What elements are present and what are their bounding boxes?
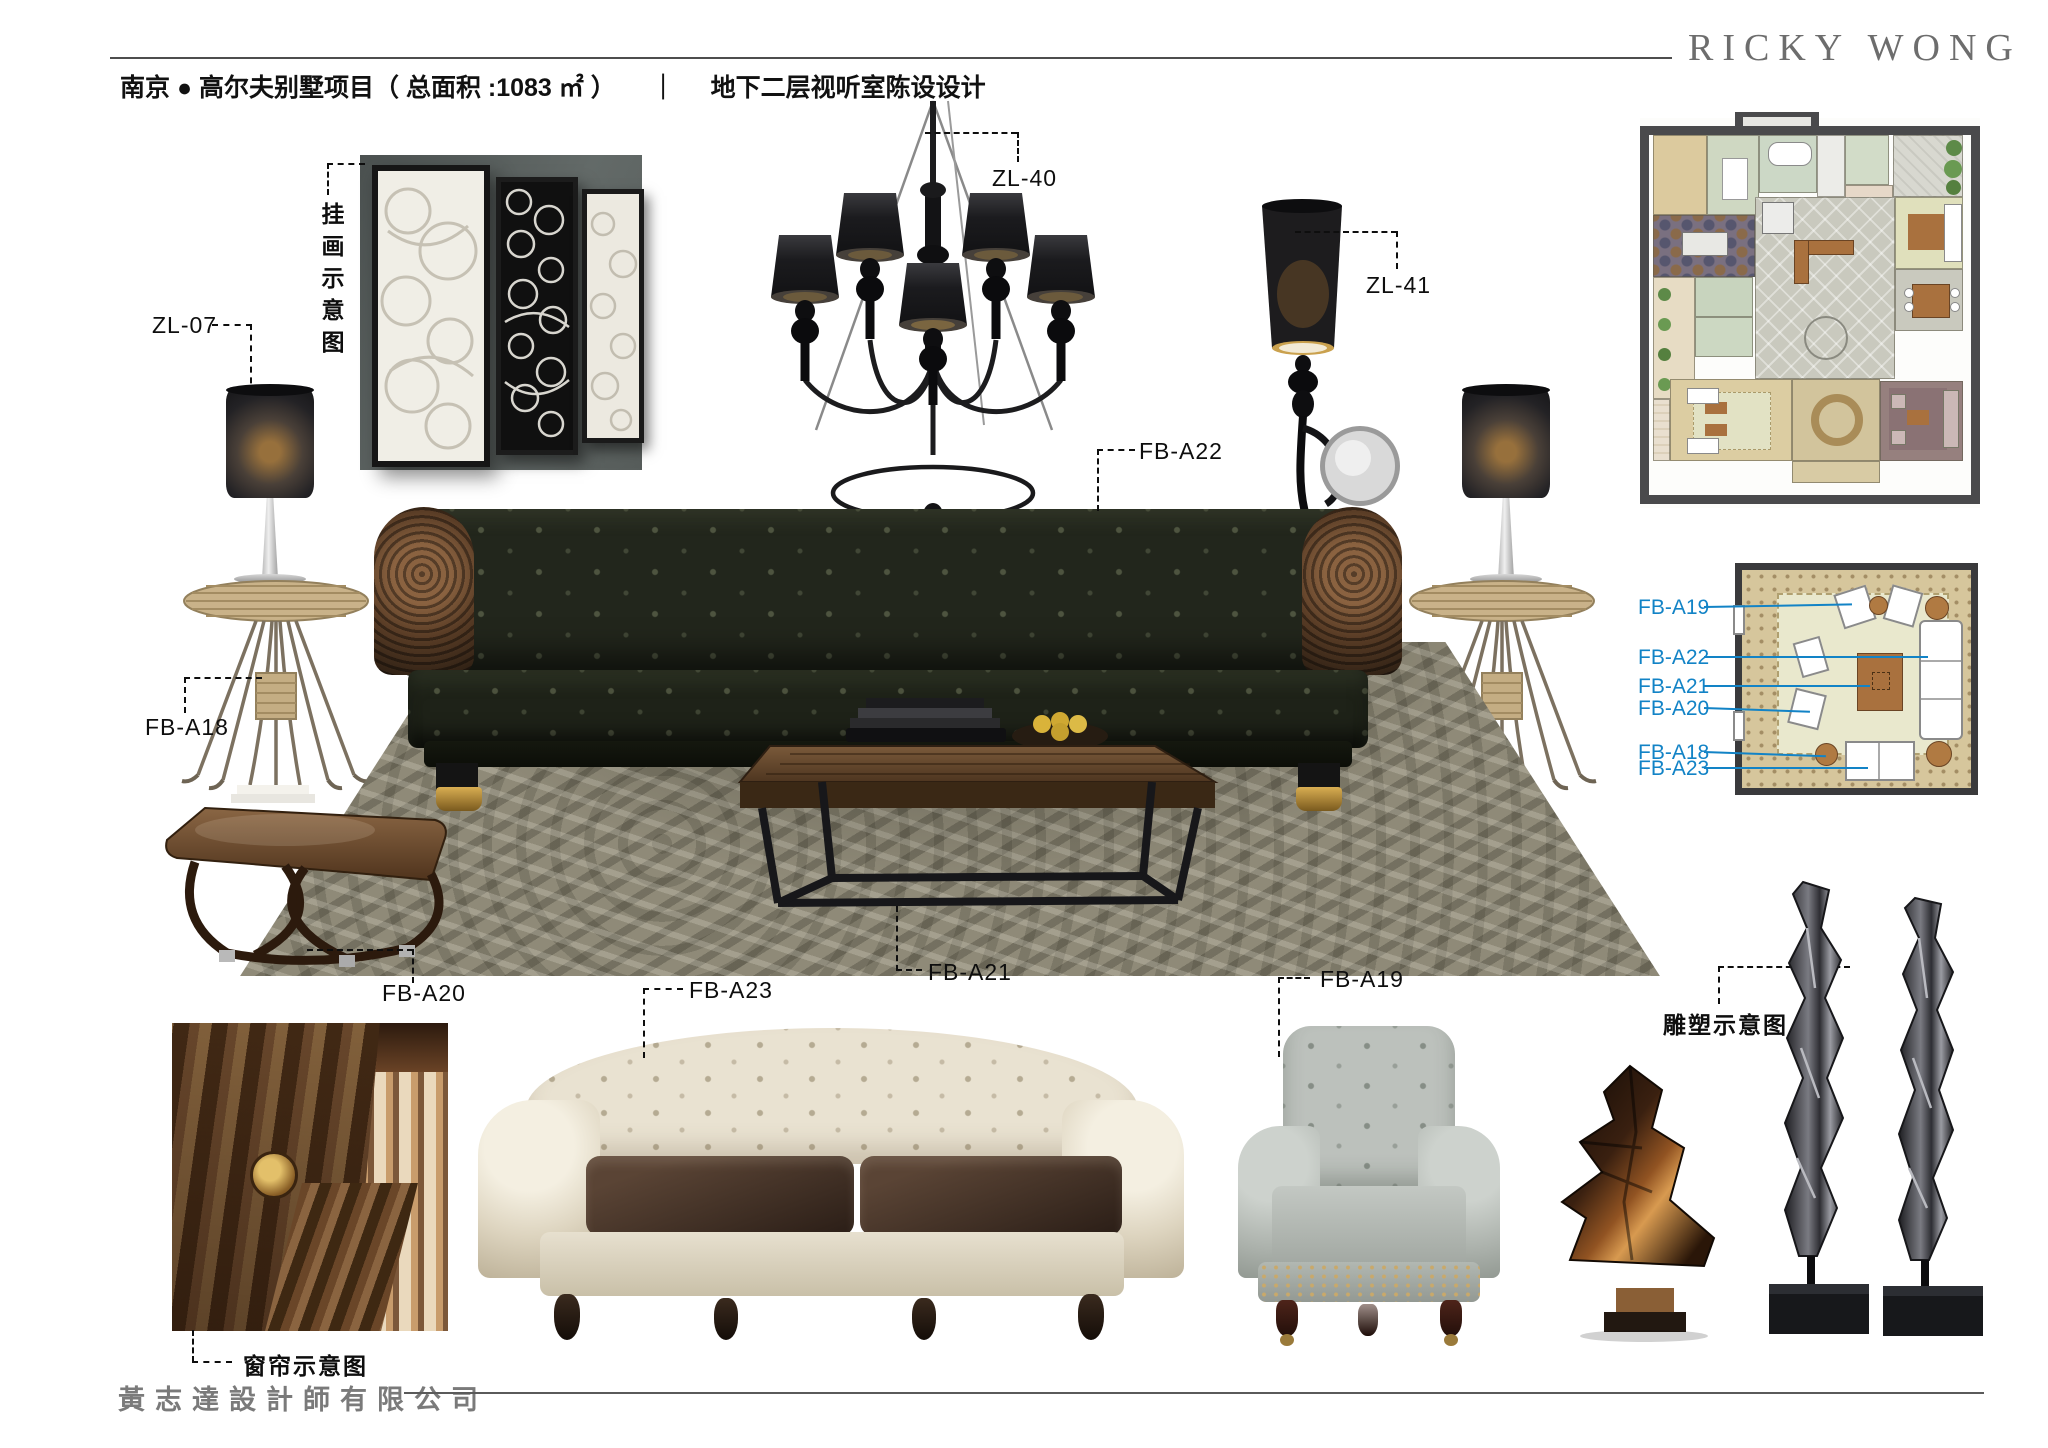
plan-theater-room: [1880, 381, 1963, 461]
lamp-shade: [1462, 388, 1550, 498]
round-motif: [1811, 394, 1863, 446]
plan2-sofa: [1919, 620, 1963, 740]
lamp-base: [256, 498, 284, 576]
plan-courtyard: [1893, 135, 1963, 197]
armchair-leg: [1440, 1300, 1462, 1336]
plan-terrace: [1653, 399, 1670, 461]
armchair-leg: [1358, 1304, 1378, 1336]
spiral-stair: [1804, 316, 1848, 360]
theater-table: [1907, 410, 1929, 425]
table-lamp-left: [226, 388, 314, 588]
lace-pattern: [501, 182, 573, 450]
artwork-panel-right: [582, 189, 644, 443]
sculpture-connector-v: [1718, 966, 1720, 1004]
zl41-connector-h: [1295, 231, 1397, 233]
fba20-connector-v: [412, 949, 414, 983]
armchair-front-band-nailheads: [1258, 1262, 1480, 1302]
fba22-label: FB-A22: [1139, 438, 1223, 465]
kitchen-counter-l: [1794, 240, 1809, 284]
theater-chair: [1891, 430, 1906, 445]
plan2-label-fba23: FB-A23: [1638, 757, 1704, 781]
fba18-connector-v: [184, 677, 186, 713]
massage-bed: [1722, 158, 1748, 200]
plan-plant: [1658, 318, 1671, 331]
artwork-panel-left: [372, 165, 490, 467]
plan-sitting-room: [1670, 379, 1792, 461]
swirl-pattern: [378, 171, 484, 461]
sofa-turned-foot: [912, 1298, 936, 1340]
theater-sofa: [1943, 390, 1959, 448]
billiard-table: [1682, 232, 1728, 256]
sculpture-figure-right: [1883, 898, 1983, 1336]
plan-grand-hall: [1755, 197, 1895, 379]
artwork-connector-v: [327, 163, 329, 195]
plan-room-theater-hex: [1653, 215, 1755, 277]
seat-cushion-leather-left: [586, 1156, 854, 1236]
theater-chair: [1891, 394, 1906, 409]
lamp-shade: [226, 388, 314, 498]
fba22-connector-h: [1097, 449, 1135, 451]
plan2-line-fba23: [1704, 767, 1868, 769]
company-name: 黃志達設計師有限公司: [118, 1378, 488, 1417]
room-plan-detail: [1735, 563, 1978, 795]
plan2-round-table: [1869, 596, 1888, 615]
plan2-bench: [1845, 741, 1915, 781]
lamp-shade-top: [1462, 384, 1550, 396]
fba18-connector-h: [184, 677, 262, 679]
plan-room-massage: [1707, 135, 1759, 215]
plan-living: [1895, 197, 1963, 269]
dining-chair: [1904, 288, 1914, 298]
sofa-divider: [1921, 660, 1961, 662]
curtain-connector-v: [192, 1330, 194, 1362]
zl40-connector-v: [1017, 132, 1019, 162]
fba23-connector-v: [643, 988, 645, 1058]
bench-divider: [1878, 743, 1880, 779]
brand-logo: RICKY WONG: [1688, 26, 2022, 70]
fba21-connector-h: [896, 969, 922, 971]
plan2-label-fba20: FB-A20: [1638, 697, 1704, 721]
swirl-pattern: [587, 194, 639, 438]
sofa-cream-chesterfield: [478, 1008, 1184, 1338]
plan-tree: [1946, 140, 1962, 156]
artwork-panel-middle: [496, 177, 578, 455]
lamp-shade-top: [226, 384, 314, 396]
fba22-connector-v: [1097, 449, 1099, 511]
zl40-label: ZL-40: [992, 165, 1057, 192]
plan2-label-fba22: FB-A22: [1638, 646, 1704, 670]
plan2-window-left2: [1733, 711, 1745, 741]
coffee-table: [700, 688, 1220, 910]
sofa-arm-left: [374, 507, 474, 675]
plan-bath4: [1695, 317, 1753, 357]
fba20-connector-h: [307, 949, 413, 951]
armchair-gray: [1228, 1008, 1508, 1343]
sitting-sofa: [1687, 388, 1719, 404]
sofa-back: [526, 1028, 1138, 1164]
project-title: 南京 ● 高尔夫别墅项目（ 总面积 :1083 ㎡ ）: [120, 74, 616, 102]
zl40-connector-h: [925, 132, 1017, 134]
armchair-seat: [1272, 1186, 1466, 1270]
sitting-sofa: [1687, 438, 1719, 454]
zl41-label: ZL-41: [1366, 272, 1431, 299]
title-divider: ｜: [651, 74, 676, 102]
elevator: [1762, 202, 1794, 234]
sofa-arm-right: [1302, 507, 1402, 675]
seat-cushion-leather-right: [860, 1156, 1122, 1236]
bathtub: [1768, 142, 1812, 166]
table-lamp-right: [1462, 388, 1550, 588]
plan2-label-fba19: FB-A19: [1638, 596, 1704, 620]
fba23-connector-h: [643, 988, 683, 990]
plan2-line-fba21: [1704, 685, 1870, 687]
living-sofa: [1944, 204, 1962, 262]
zl07-label: ZL-07: [152, 312, 217, 339]
presentation-board: RICKY WONG 南京 ● 高尔夫别墅项目（ 总面积 :1083 ㎡ ） ｜…: [0, 0, 2048, 1448]
fba19-connector-h: [1278, 977, 1310, 979]
tabletop-items: [846, 698, 1108, 750]
caster-wheel: [1280, 1334, 1294, 1346]
fba21-connector-v: [896, 906, 898, 971]
plan-bath3: [1695, 277, 1753, 317]
fba19-connector-v: [1278, 977, 1280, 1057]
sofa-claw-foot-gold: [1296, 787, 1342, 811]
plan-plant: [1658, 288, 1671, 301]
curtain-photo: [172, 1023, 448, 1331]
armchair-leg: [1276, 1300, 1298, 1336]
sofa-divider: [1921, 698, 1961, 700]
fba21-label: FB-A21: [928, 959, 1012, 986]
dining-table: [1912, 284, 1950, 318]
plan2-table-inset: [1872, 672, 1890, 690]
plan-round-room: [1792, 379, 1880, 461]
fba19-label: FB-A19: [1320, 966, 1404, 993]
caster-wheel: [1444, 1334, 1458, 1346]
sofa-turned-foot: [554, 1294, 580, 1340]
plan2-window-left: [1733, 605, 1745, 635]
artwork-photo: [360, 155, 642, 470]
plan-room-spa: [1653, 135, 1707, 215]
plan-tree: [1946, 180, 1961, 195]
header-rule: [110, 57, 1672, 59]
zl07-connector-h: [212, 324, 252, 326]
artwork-connector-h: [327, 163, 365, 165]
sofa-back: [394, 509, 1382, 677]
plan-room-bath2: [1845, 135, 1889, 185]
floor-plan-overview: [1640, 118, 1980, 508]
sofa-turned-foot: [714, 1298, 738, 1340]
standing-sculptures: [1755, 868, 2005, 1338]
plan2-round-table: [1926, 741, 1952, 767]
bust-sculpture: [1532, 1052, 1752, 1342]
table-structure: [740, 746, 1215, 903]
curtain-note-label: 窗帘示意图: [243, 1347, 368, 1381]
sofa-turned-foot: [1078, 1294, 1104, 1340]
sofa-front-rail: [540, 1232, 1124, 1296]
wall-sconce: [1240, 198, 1440, 538]
plan-closet: [1817, 135, 1845, 197]
plan-room-bath-main: [1759, 135, 1817, 193]
plan-tree: [1944, 160, 1962, 178]
dining-chair: [1904, 302, 1914, 312]
fba23-label: FB-A23: [689, 977, 773, 1004]
plan2-label-fba21: FB-A21: [1638, 675, 1704, 699]
plan2-round-table: [1925, 596, 1949, 620]
plan-plant: [1658, 348, 1671, 361]
artwork-note-label: 挂画示意图: [314, 202, 348, 362]
plan-dining: [1895, 269, 1963, 331]
plan2-line-fba22: [1704, 656, 1928, 658]
fba20-label: FB-A20: [382, 980, 466, 1007]
dining-chair: [1950, 288, 1960, 298]
sitting-pillow: [1705, 424, 1727, 436]
chandelier: [770, 95, 1100, 535]
ottoman: [135, 770, 485, 970]
lamp-base: [1492, 498, 1520, 576]
sculpture-figure-left: [1769, 882, 1869, 1334]
footer-rule: [404, 1392, 1984, 1394]
zl41-connector-v: [1396, 231, 1398, 269]
plan-bottom-hall: [1792, 461, 1880, 483]
curtain-tieback-medallion: [250, 1151, 298, 1199]
fba18-label: FB-A18: [145, 714, 229, 741]
dining-chair: [1950, 302, 1960, 312]
curtain-connector-h: [192, 1361, 232, 1363]
plan2-coffee-table: [1857, 653, 1903, 711]
